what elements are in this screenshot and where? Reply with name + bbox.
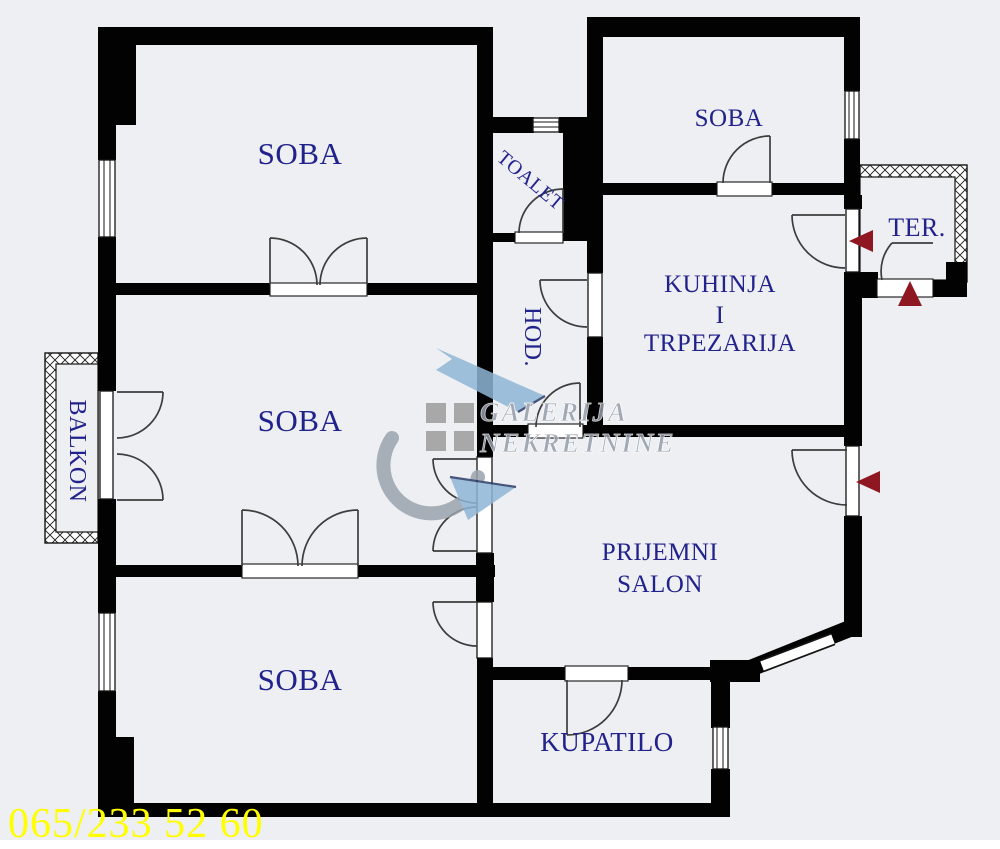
room-label-terasa: TER. — [888, 213, 946, 242]
room-label-soba-top-left: SOBA — [258, 136, 343, 171]
floor-plan-page: SOBA SOBA TOALET HOD. KUHINJA I TRPEZARI… — [0, 0, 1000, 849]
window-top-right-room — [845, 91, 859, 139]
watermark-text-line2: NEKRETNINE — [479, 428, 676, 458]
opening-kitchen-door — [588, 273, 602, 337]
watermark-text-line1: GALERIJA — [480, 397, 628, 427]
room-label-hodnik: HOD. — [519, 307, 545, 367]
phone-number: 065/233 52 60 — [8, 801, 264, 847]
room-label-kuhinja-line2: I — [716, 302, 725, 329]
room-label-soba-top-right: SOBA — [695, 105, 764, 132]
floor-plan-drawing: SOBA SOBA TOALET HOD. KUHINJA I TRPEZARI… — [0, 0, 1000, 849]
window-toilet — [533, 118, 559, 132]
threshold-middle-bottom-room — [242, 564, 358, 578]
opening-salon-to-bottom-room — [477, 602, 492, 658]
threshold-toilet — [515, 232, 563, 243]
room-label-soba-bottom: SOBA — [258, 662, 343, 697]
room-label-prijemni-line1: PRIJEMNI — [602, 539, 719, 566]
window-bathroom — [713, 727, 728, 769]
room-label-soba-middle: SOBA — [258, 403, 343, 438]
room-label-kuhinja-line3: TRPEZARIJA — [644, 330, 796, 357]
room-label-prijemni-line2: SALON — [617, 571, 703, 598]
room-label-kupatilo: KUPATILO — [540, 727, 674, 757]
room-label-kuhinja-line1: KUHINJA — [664, 271, 776, 298]
opening-salon-entry-door — [846, 446, 859, 516]
threshold-top-right-room — [717, 182, 772, 196]
threshold-bathroom — [565, 666, 628, 681]
room-label-balkon: BALKON — [64, 400, 90, 503]
opening-balcony-door — [100, 391, 113, 499]
window-bottom-room — [99, 613, 115, 691]
window-top-left-room — [99, 160, 115, 237]
threshold-top-left-room — [270, 283, 367, 296]
